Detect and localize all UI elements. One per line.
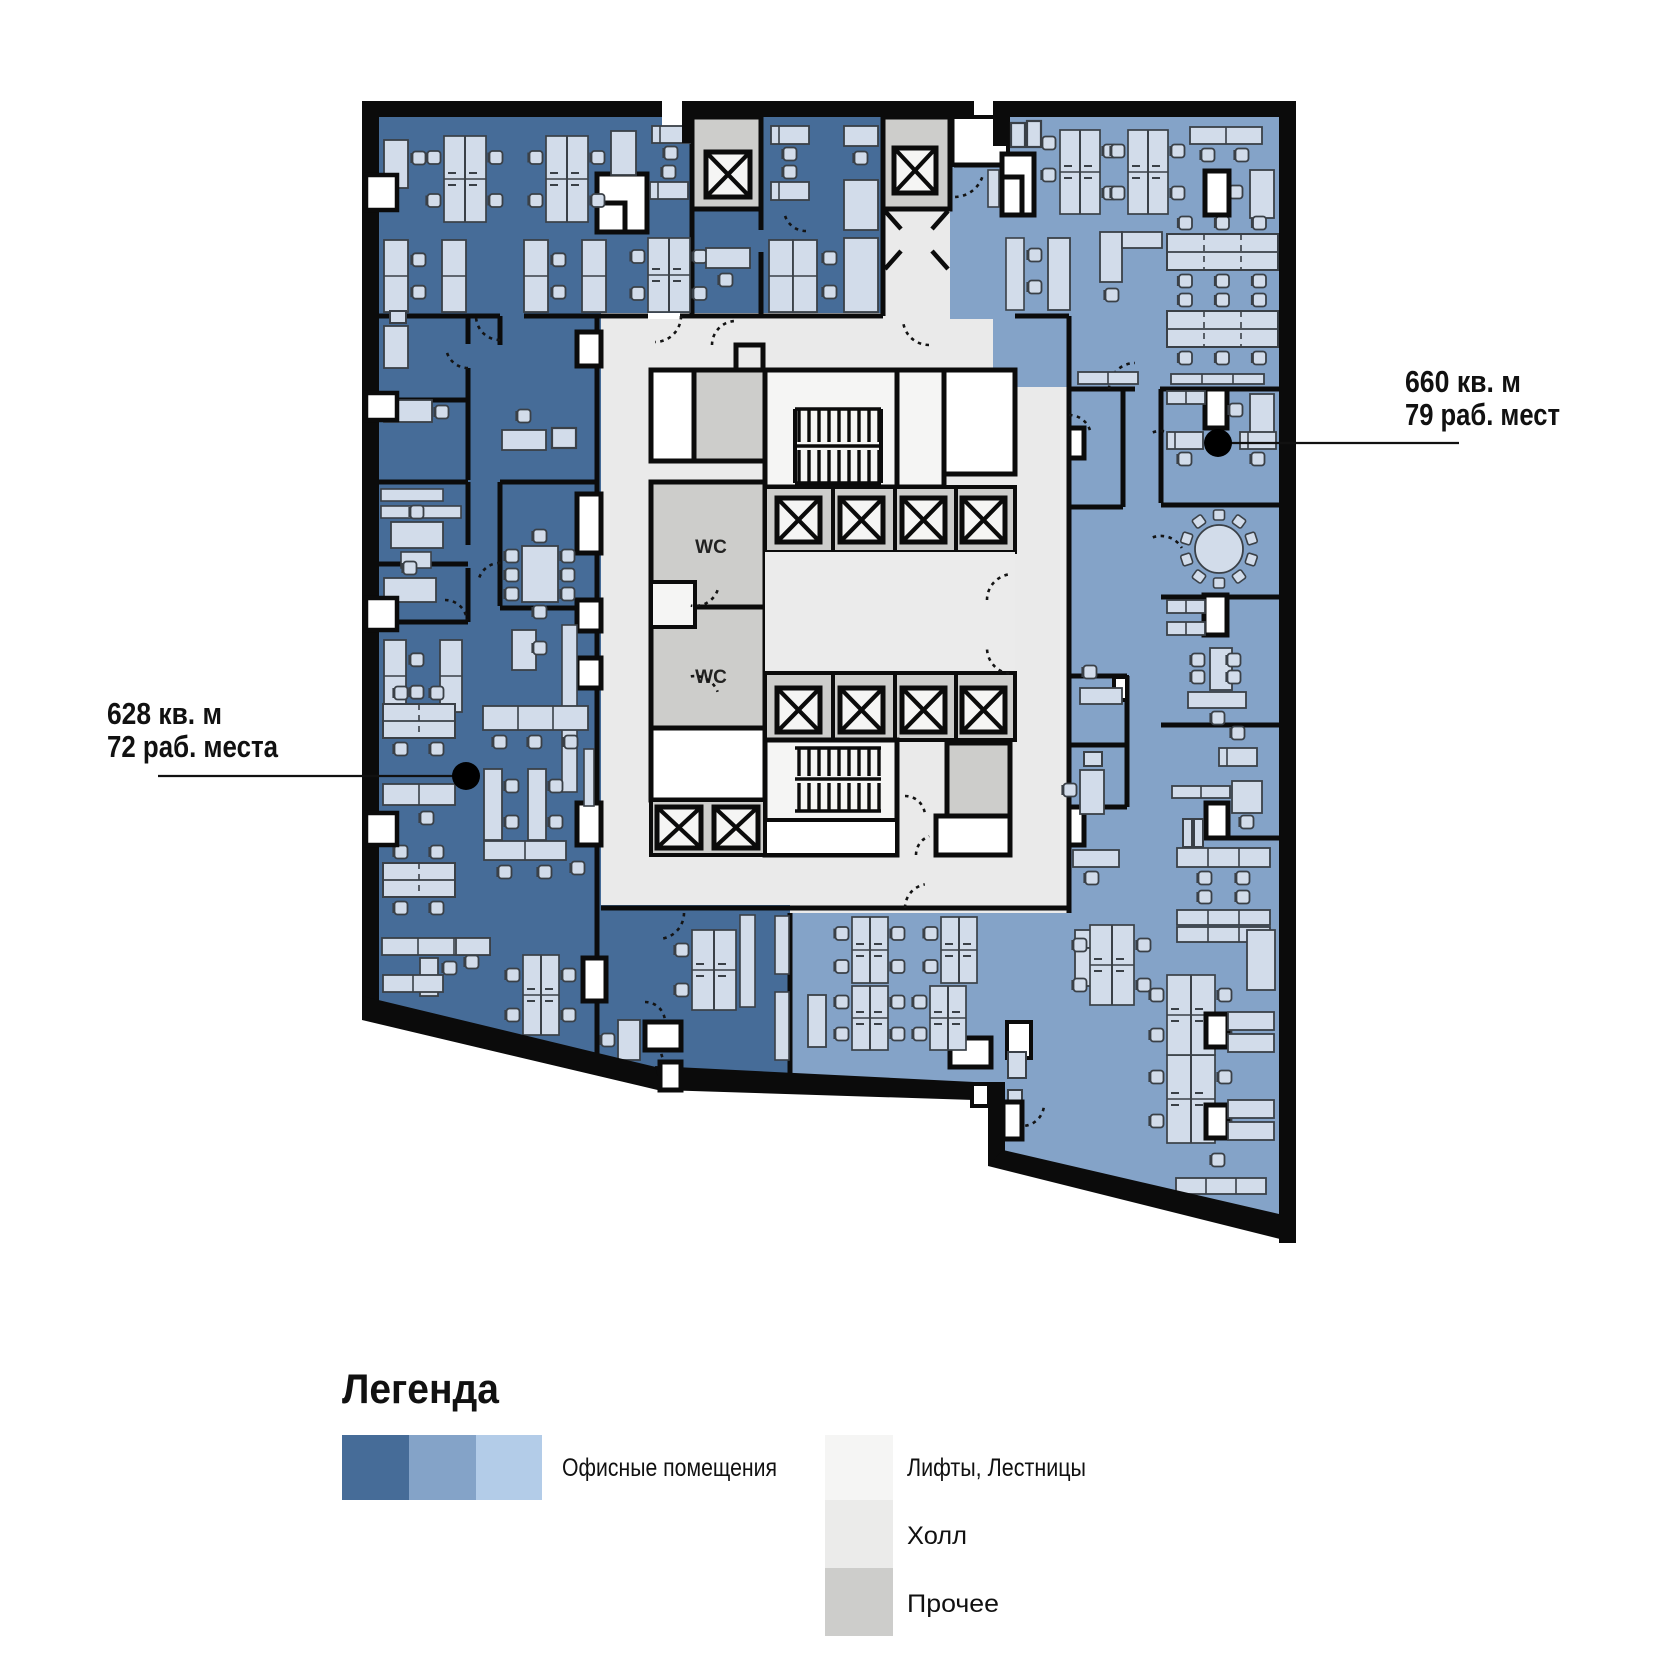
svg-text:628 кв. м: 628 кв. м <box>107 696 222 731</box>
svg-text:72 раб. места: 72 раб. места <box>107 729 279 764</box>
svg-text:Лифты, Лестницы: Лифты, Лестницы <box>907 1454 1086 1482</box>
svg-text:79 раб. мест: 79 раб. мест <box>1405 397 1560 432</box>
svg-text:660 кв. м: 660 кв. м <box>1405 364 1521 399</box>
svg-text:Холл: Холл <box>907 1522 967 1550</box>
svg-text:Прочее: Прочее <box>907 1590 999 1618</box>
svg-text:Легенда: Легенда <box>342 1365 500 1412</box>
svg-text:Офисные помещения: Офисные помещения <box>562 1454 777 1482</box>
svg-text:WC: WC <box>695 537 727 558</box>
